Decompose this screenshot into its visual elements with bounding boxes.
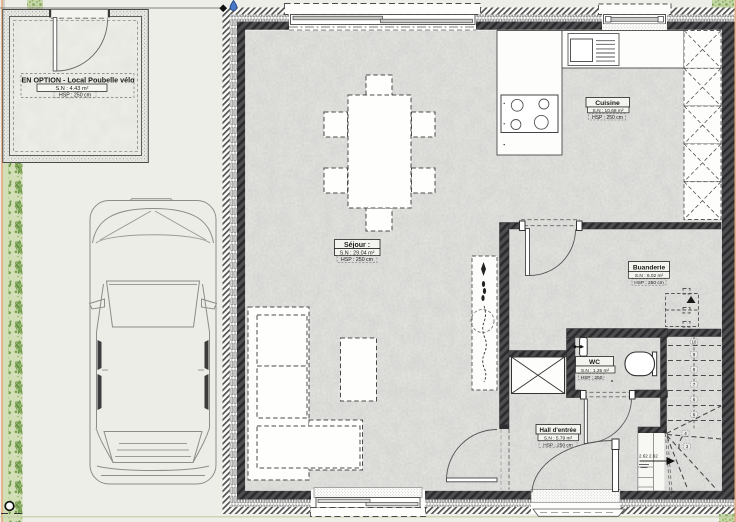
svg-text:Hall d'entrée: Hall d'entrée	[540, 427, 577, 434]
svg-text:S.N : 1.25 m²: S.N : 1.25 m²	[581, 368, 610, 374]
svg-text:Buanderie: Buanderie	[633, 264, 666, 271]
svg-text:HSP : 250 cm: HSP : 250 cm	[592, 115, 623, 121]
svg-text:Séjour :: Séjour :	[344, 242, 370, 249]
svg-text:HSP : 250 cm: HSP : 250 cm	[59, 93, 91, 99]
svg-text:HSP : 250: HSP : 250	[581, 375, 603, 381]
svg-text:EN OPTION - Local Poubelle vél: EN OPTION - Local Poubelle vélo	[21, 75, 135, 84]
svg-text:HSP : 250 cm: HSP : 250 cm	[634, 280, 664, 286]
svg-text:HSP : 250 cm: HSP : 250 cm	[341, 257, 373, 263]
svg-text:S.N : 10.68 m²: S.N : 10.68 m²	[593, 108, 624, 114]
svg-text:S.N : 4.43 m²: S.N : 4.43 m²	[56, 86, 89, 92]
svg-text:(h): (h)	[519, 352, 525, 357]
svg-text:HSP : 250 cm: HSP : 250 cm	[543, 442, 573, 448]
svg-text:2.62 2.62: 2.62 2.62	[639, 454, 658, 459]
svg-text:S.N : 6.02 m²: S.N : 6.02 m²	[635, 273, 664, 279]
svg-text:10: 10	[692, 340, 697, 345]
svg-text:S.N : 5.79 m²: S.N : 5.79 m²	[544, 436, 573, 442]
svg-text:WC: WC	[589, 359, 600, 366]
svg-text:Cuisine: Cuisine	[595, 100, 620, 107]
